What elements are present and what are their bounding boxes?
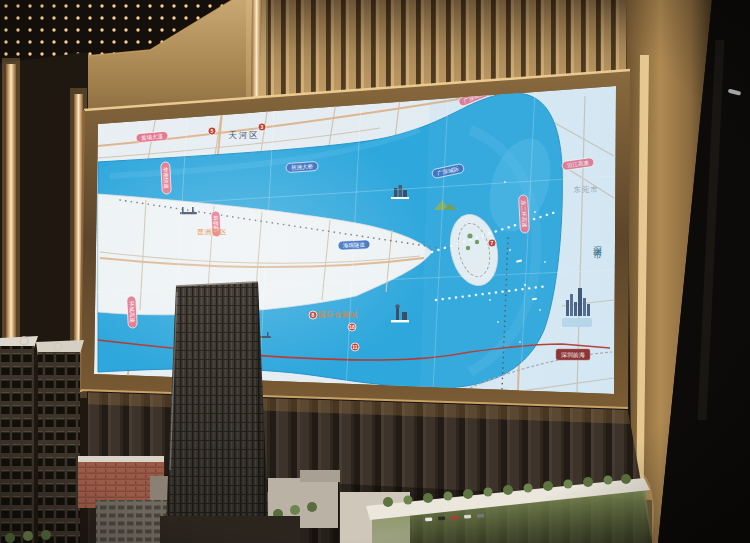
showroom-scene: 黄埔大道 华南快速 科韵路 广深高速 东二环高速 环城高速 [0,0,750,543]
photo-vignette [0,0,750,543]
showroom-photo: 黄埔大道 华南快速 科韵路 广深高速 东二环高速 环城高速 [0,0,750,543]
